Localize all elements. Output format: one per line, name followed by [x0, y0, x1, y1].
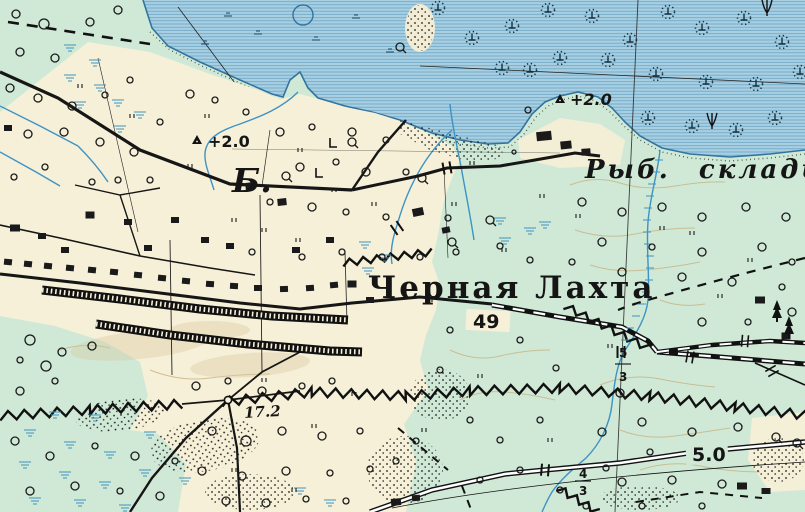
settlement-label: Черная Лахта: [368, 270, 655, 306]
fraction-numerator: 5: [619, 346, 627, 360]
map-canvas[interactable]: Черная Лахта Рыб. склады Б. +2.0 +2.0 49…: [0, 0, 805, 512]
spruce-icon: [772, 300, 794, 338]
lagoon: [293, 5, 313, 25]
topographic-map: Черная Лахта Рыб. склады Б. +2.0 +2.0 49…: [0, 0, 805, 512]
letter-b-label: Б.: [231, 161, 272, 200]
fraction-denominator: 3: [579, 484, 587, 498]
fish-warehouses-label: Рыб. склады: [584, 155, 805, 185]
benchmark-shore-label: +2.0: [570, 90, 612, 109]
road-49-label: 49: [473, 311, 499, 333]
bridge-fraction-south: 4 3: [575, 467, 591, 498]
fraction-numerator: 4: [579, 467, 587, 481]
spot-height-label: 17.2: [244, 402, 281, 422]
road-junction-node: [224, 396, 231, 403]
road-50-label: 5.0: [692, 444, 726, 466]
fraction-denominator: 3: [619, 370, 627, 384]
trail-topleft: [8, 22, 150, 44]
benchmark-field-label: +2.0: [208, 132, 250, 151]
